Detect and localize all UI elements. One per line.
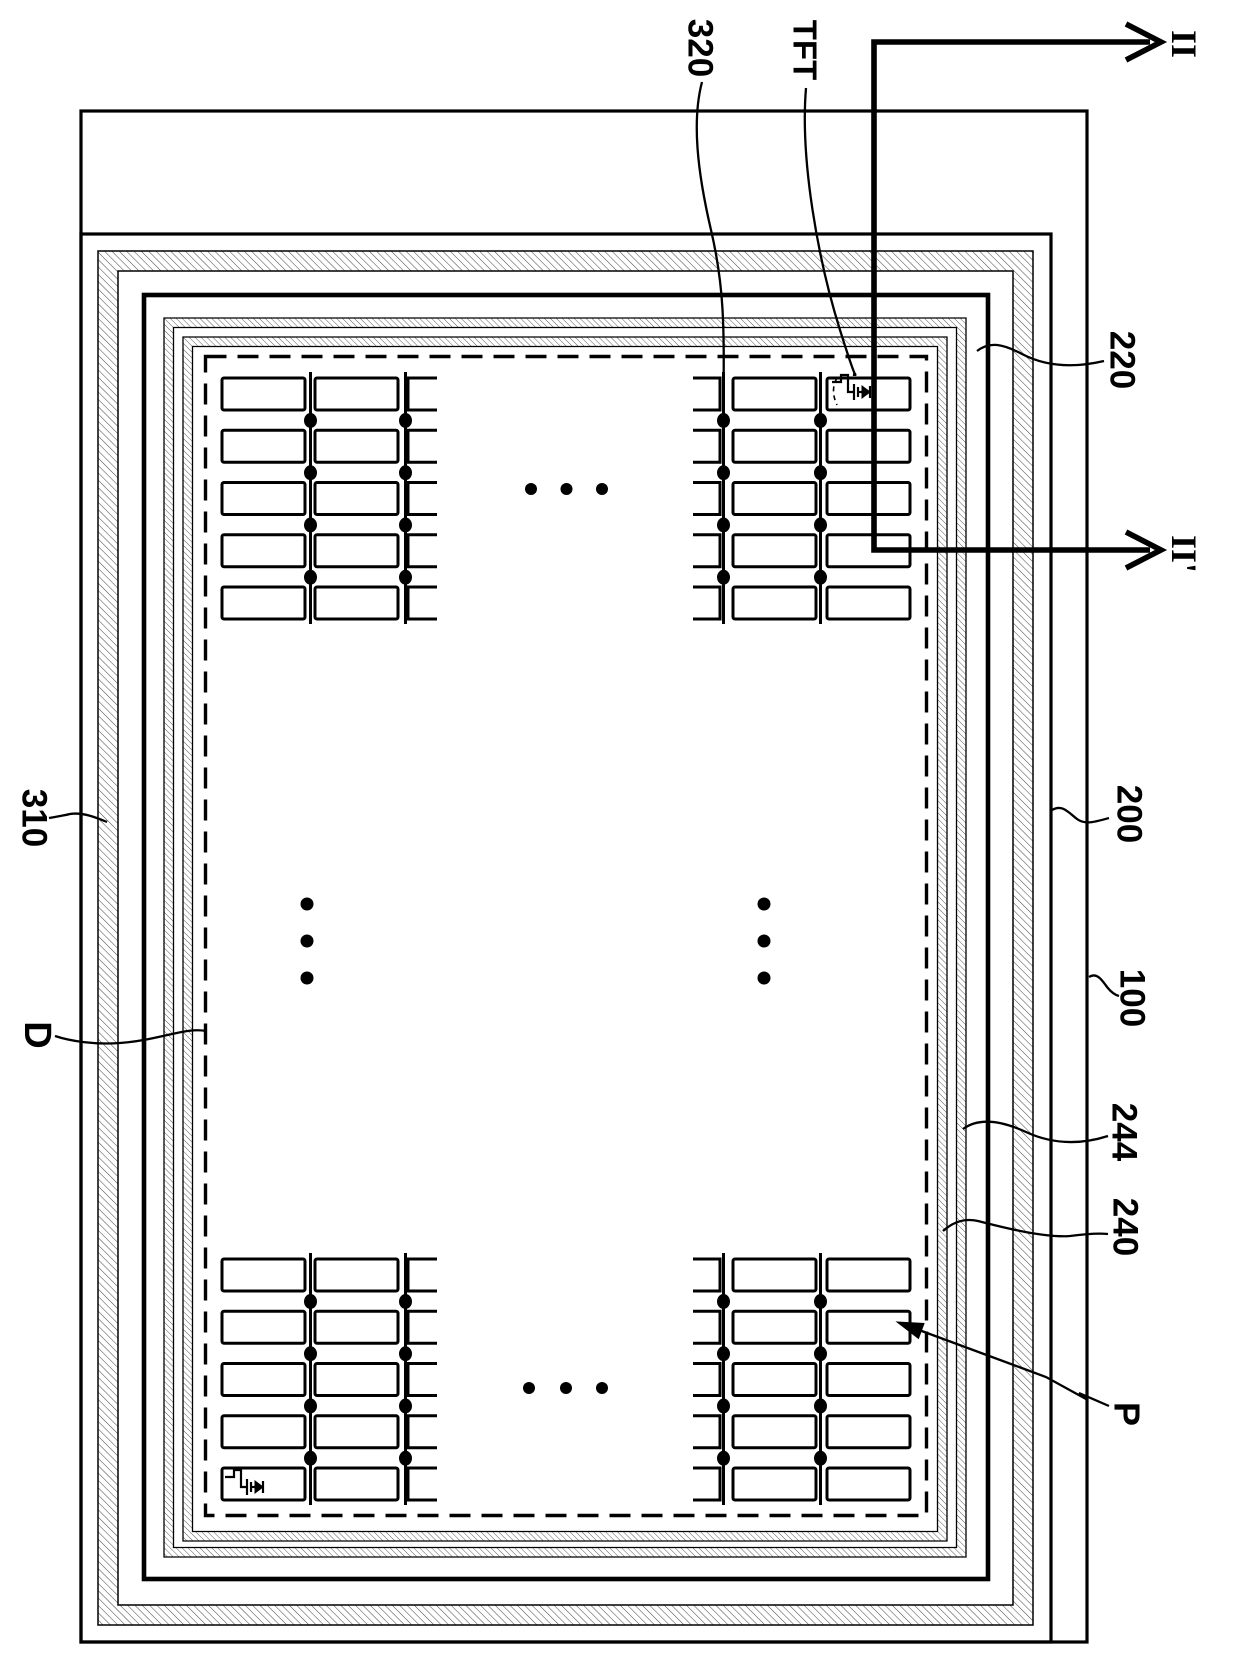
- pixel-array-bottom-left: [222, 1253, 437, 1505]
- label-tft: TFT: [787, 20, 824, 80]
- pixel-column: [315, 1259, 398, 1500]
- substrate-200-outline: [81, 234, 1051, 1642]
- leader-tft: [805, 88, 856, 376]
- label-320: 320: [681, 19, 720, 77]
- label-244: 244: [1105, 1103, 1144, 1162]
- pixel-column-partial: [693, 378, 720, 619]
- pixel-column-partial: [693, 1259, 720, 1500]
- patent-figure-page: 320 TFT II II' 220 200 100 244 240 P 310…: [0, 0, 1240, 1675]
- ellipsis-dots-bottom: [523, 1382, 608, 1394]
- label-100: 100: [1113, 969, 1152, 1027]
- pixel-column: [315, 378, 398, 619]
- pixel-column: [827, 1259, 910, 1500]
- pixel-column-partial: [408, 1259, 437, 1500]
- pixel-array-bottom-right: [693, 1253, 910, 1505]
- leader-200: [1052, 808, 1109, 823]
- pixel-column: [222, 378, 305, 619]
- label-310: 310: [15, 789, 54, 847]
- leader-320: [697, 82, 724, 411]
- label-200: 200: [1110, 785, 1149, 843]
- pixel-column: [827, 378, 910, 619]
- pixel-array-top-left: [222, 372, 437, 624]
- pixel-column: [222, 1259, 305, 1500]
- label-P: P: [1107, 1402, 1148, 1426]
- label-section-end: II': [1164, 535, 1204, 573]
- ellipsis-dots-top: [525, 483, 608, 495]
- label-D: D: [16, 1021, 58, 1048]
- ellipsis-dots-left: [301, 898, 314, 985]
- pixel-column-partial: [408, 378, 437, 619]
- patent-figure-svg: 320 TFT II II' 220 200 100 244 240 P 310…: [0, 0, 1240, 1675]
- leader-220: [977, 345, 1104, 365]
- seal-ring-310: [98, 251, 1033, 1625]
- pixel-column: [733, 1259, 816, 1500]
- label-section-start: II: [1164, 30, 1204, 58]
- label-220: 220: [1103, 331, 1142, 389]
- pixel-column: [733, 378, 816, 619]
- tft-icon: [225, 1470, 263, 1495]
- pixel-array-top-right: [693, 372, 910, 624]
- dam-244: [164, 318, 966, 1557]
- dam-240: [183, 337, 947, 1541]
- label-240: 240: [1106, 1198, 1145, 1256]
- ellipsis-dots-right: [758, 898, 771, 985]
